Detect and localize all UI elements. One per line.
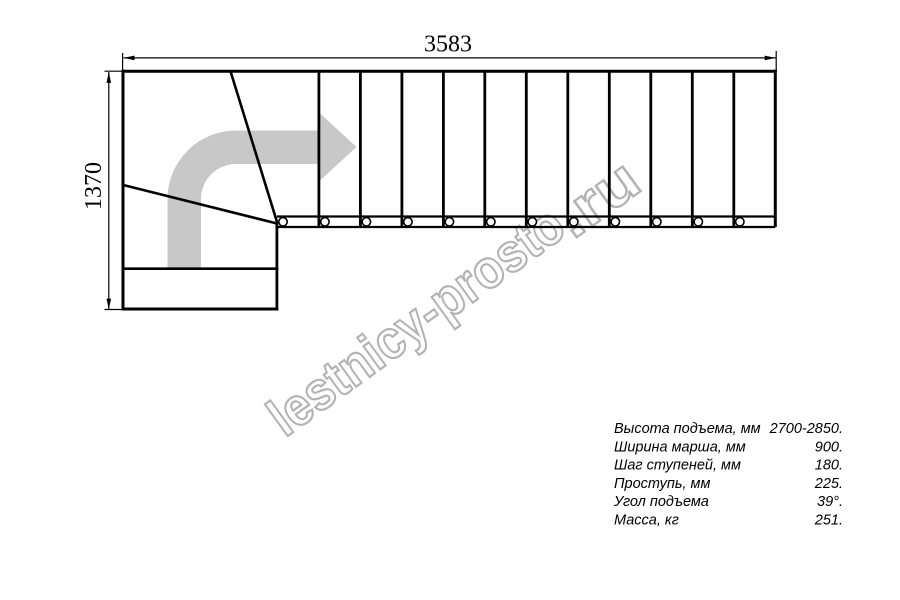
svg-text:251.: 251. — [814, 513, 843, 529]
svg-text:2700-2850.: 2700-2850. — [769, 421, 843, 437]
svg-text:3583: 3583 — [424, 32, 472, 58]
svg-text:39°.: 39°. — [817, 494, 843, 510]
svg-text:225.: 225. — [814, 476, 843, 492]
svg-text:180.: 180. — [815, 458, 843, 474]
svg-text:1370: 1370 — [81, 162, 107, 210]
svg-text:Высота подъема, мм: Высота подъема, мм — [614, 421, 761, 437]
svg-text:900.: 900. — [815, 439, 843, 455]
svg-text:Ширина марша, мм: Ширина марша, мм — [614, 439, 746, 455]
svg-text:Угол подъема: Угол подъема — [613, 494, 709, 510]
svg-text:Шаг ступеней, мм: Шаг ступеней, мм — [614, 458, 741, 474]
svg-text:Проступь, мм: Проступь, мм — [614, 476, 710, 492]
svg-text:Масса, кг: Масса, кг — [614, 513, 679, 529]
